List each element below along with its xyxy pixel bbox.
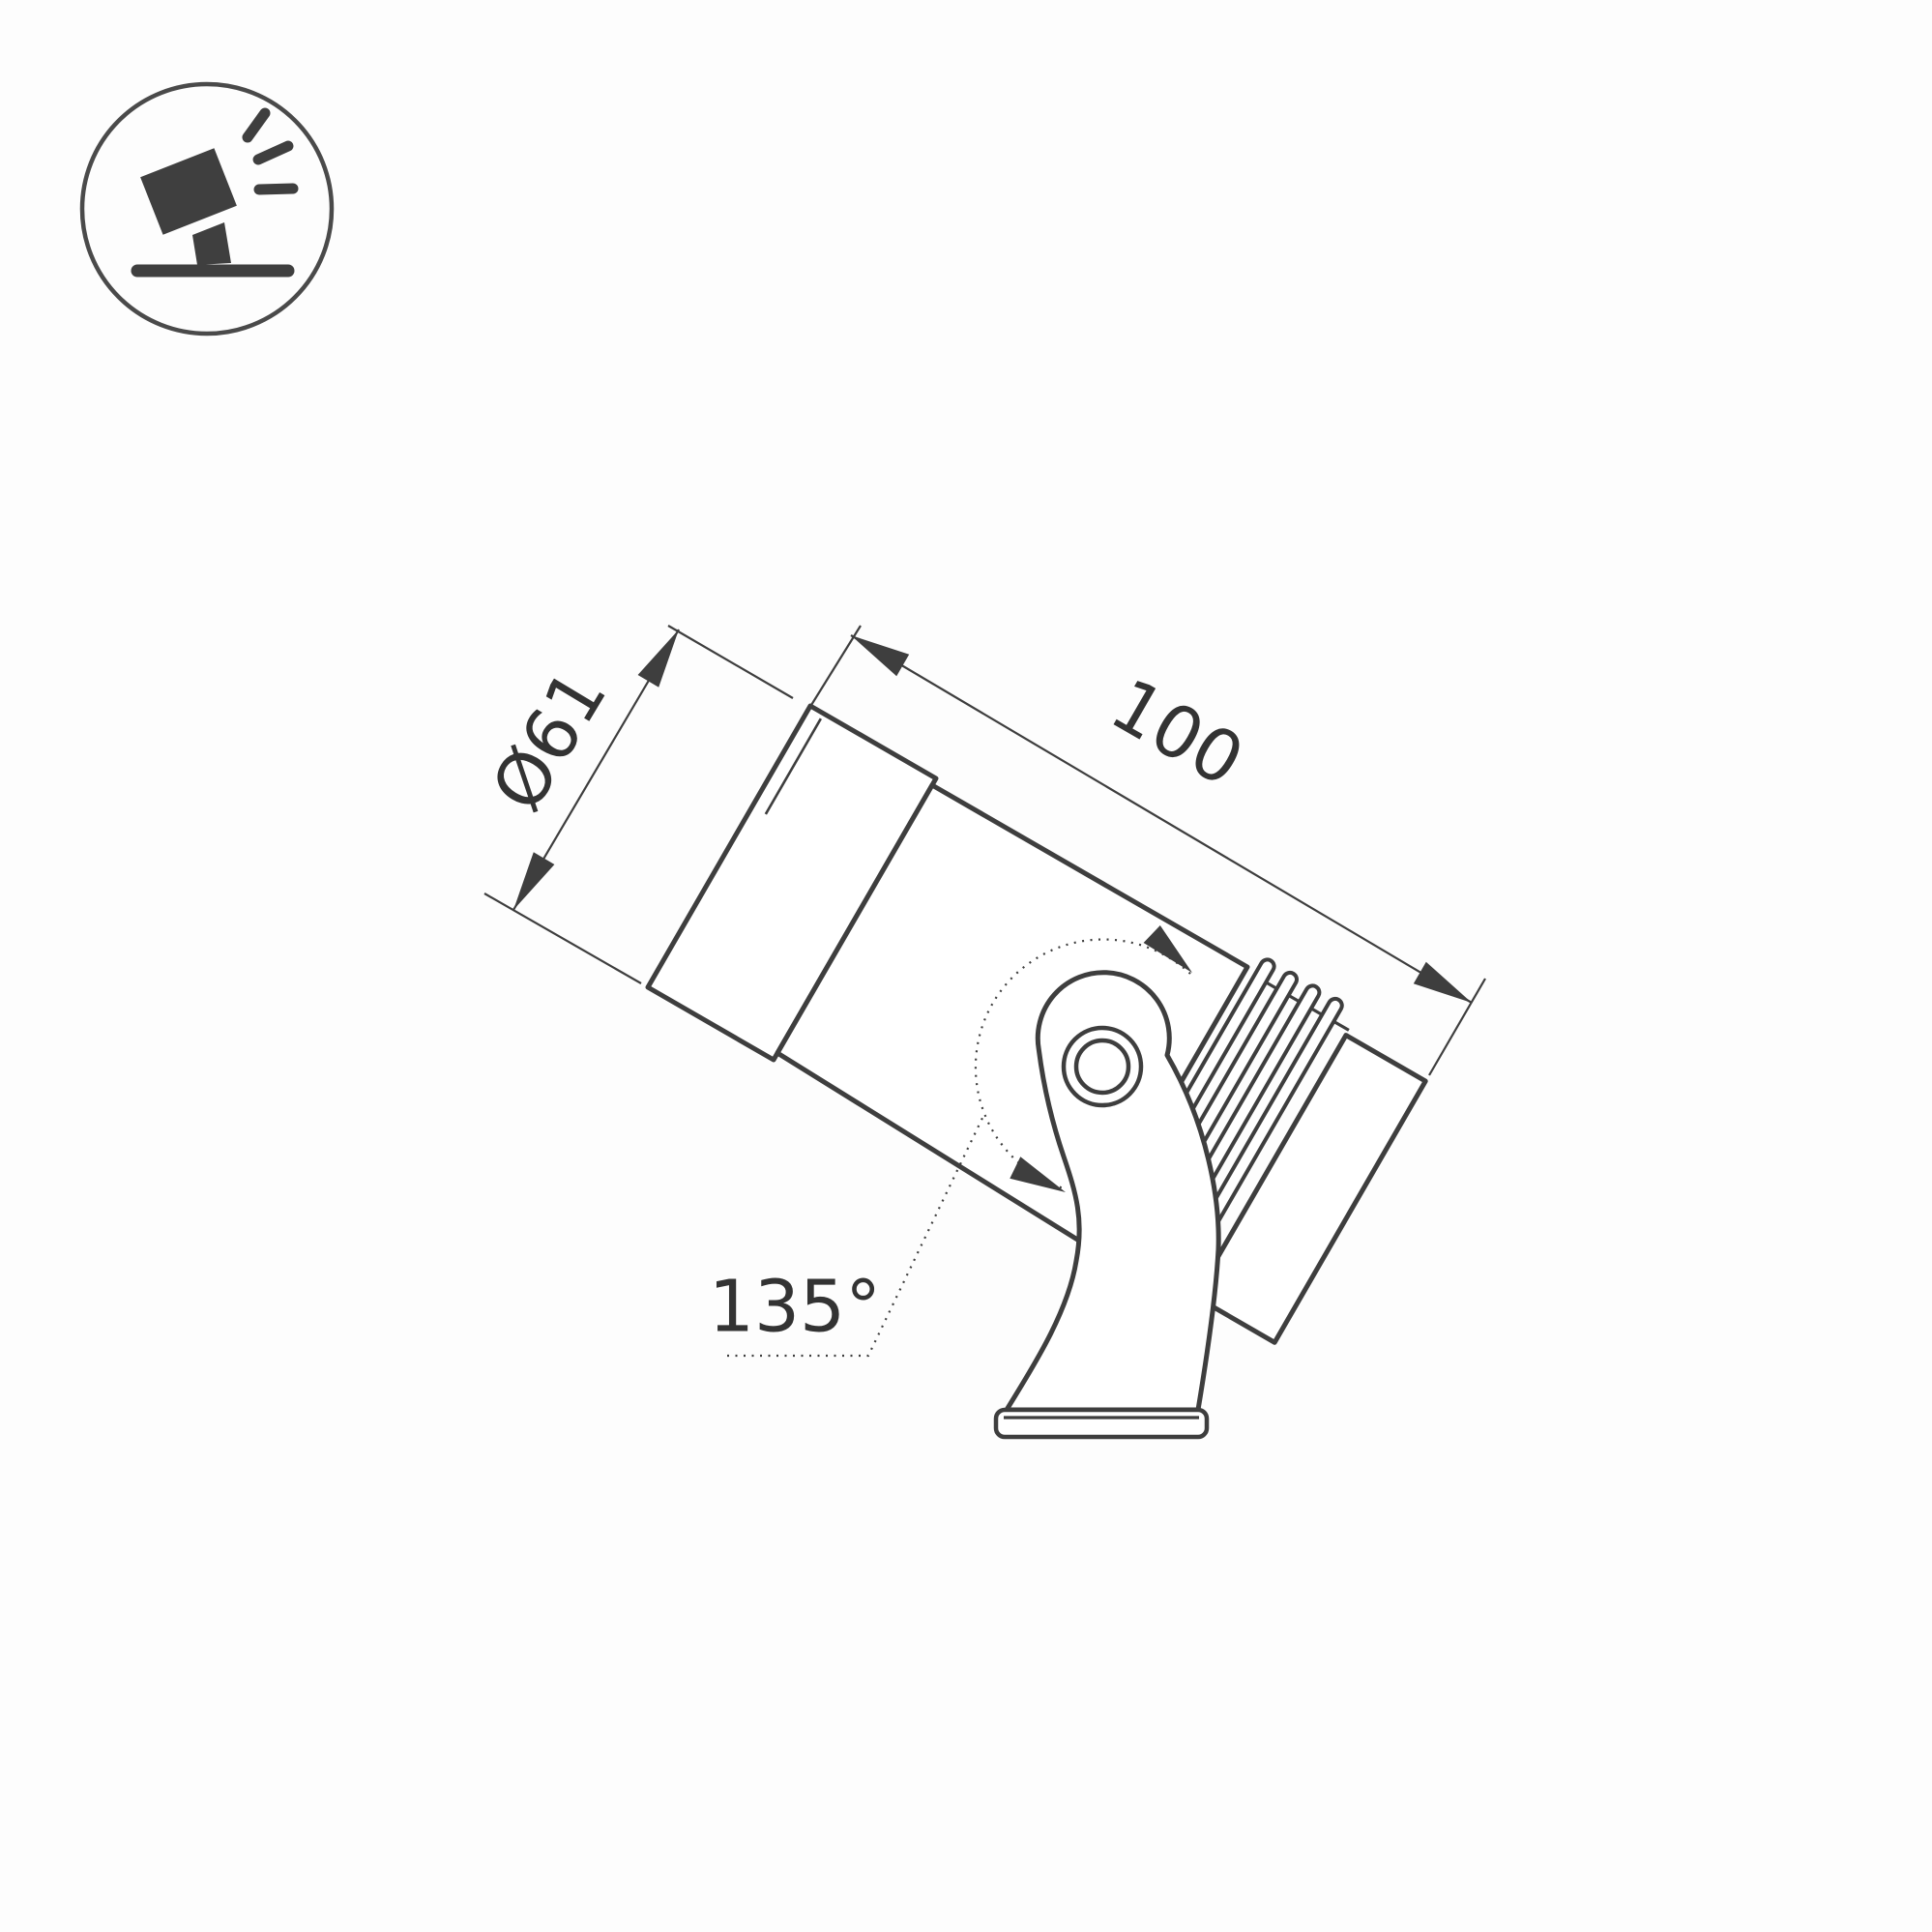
diameter-label: Ø61 bbox=[476, 656, 623, 825]
fin-joint-line bbox=[1266, 982, 1276, 989]
extension-line bbox=[808, 626, 861, 710]
dimension-drawing-svg: Ø61 100 135° bbox=[0, 0, 1932, 1932]
arrowhead-icon bbox=[513, 852, 554, 910]
drawing-canvas: Ø61 100 135° bbox=[0, 0, 1932, 1932]
arrowhead-icon bbox=[1414, 962, 1472, 1003]
extension-line bbox=[484, 893, 641, 983]
arrowhead-icon bbox=[638, 629, 679, 688]
extension-line bbox=[668, 626, 793, 698]
spotlight-stand-icon bbox=[192, 222, 231, 265]
spotlight-head-icon bbox=[140, 148, 237, 235]
base-plate bbox=[996, 1410, 1207, 1437]
light-ray-icon bbox=[248, 113, 265, 137]
arrowhead-icon bbox=[851, 635, 909, 676]
light-ray-icon bbox=[259, 189, 293, 190]
pivot-circle-inner bbox=[1076, 1040, 1128, 1093]
light-ray-icon bbox=[258, 146, 288, 160]
spotlight-type-icon bbox=[82, 84, 332, 334]
angle-label: 135° bbox=[709, 1266, 881, 1349]
fin-joint-line bbox=[1311, 1009, 1322, 1015]
fin-joint-line bbox=[1289, 995, 1300, 1002]
fin-joint-line bbox=[1333, 1021, 1349, 1030]
length-label: 100 bbox=[1098, 663, 1257, 804]
